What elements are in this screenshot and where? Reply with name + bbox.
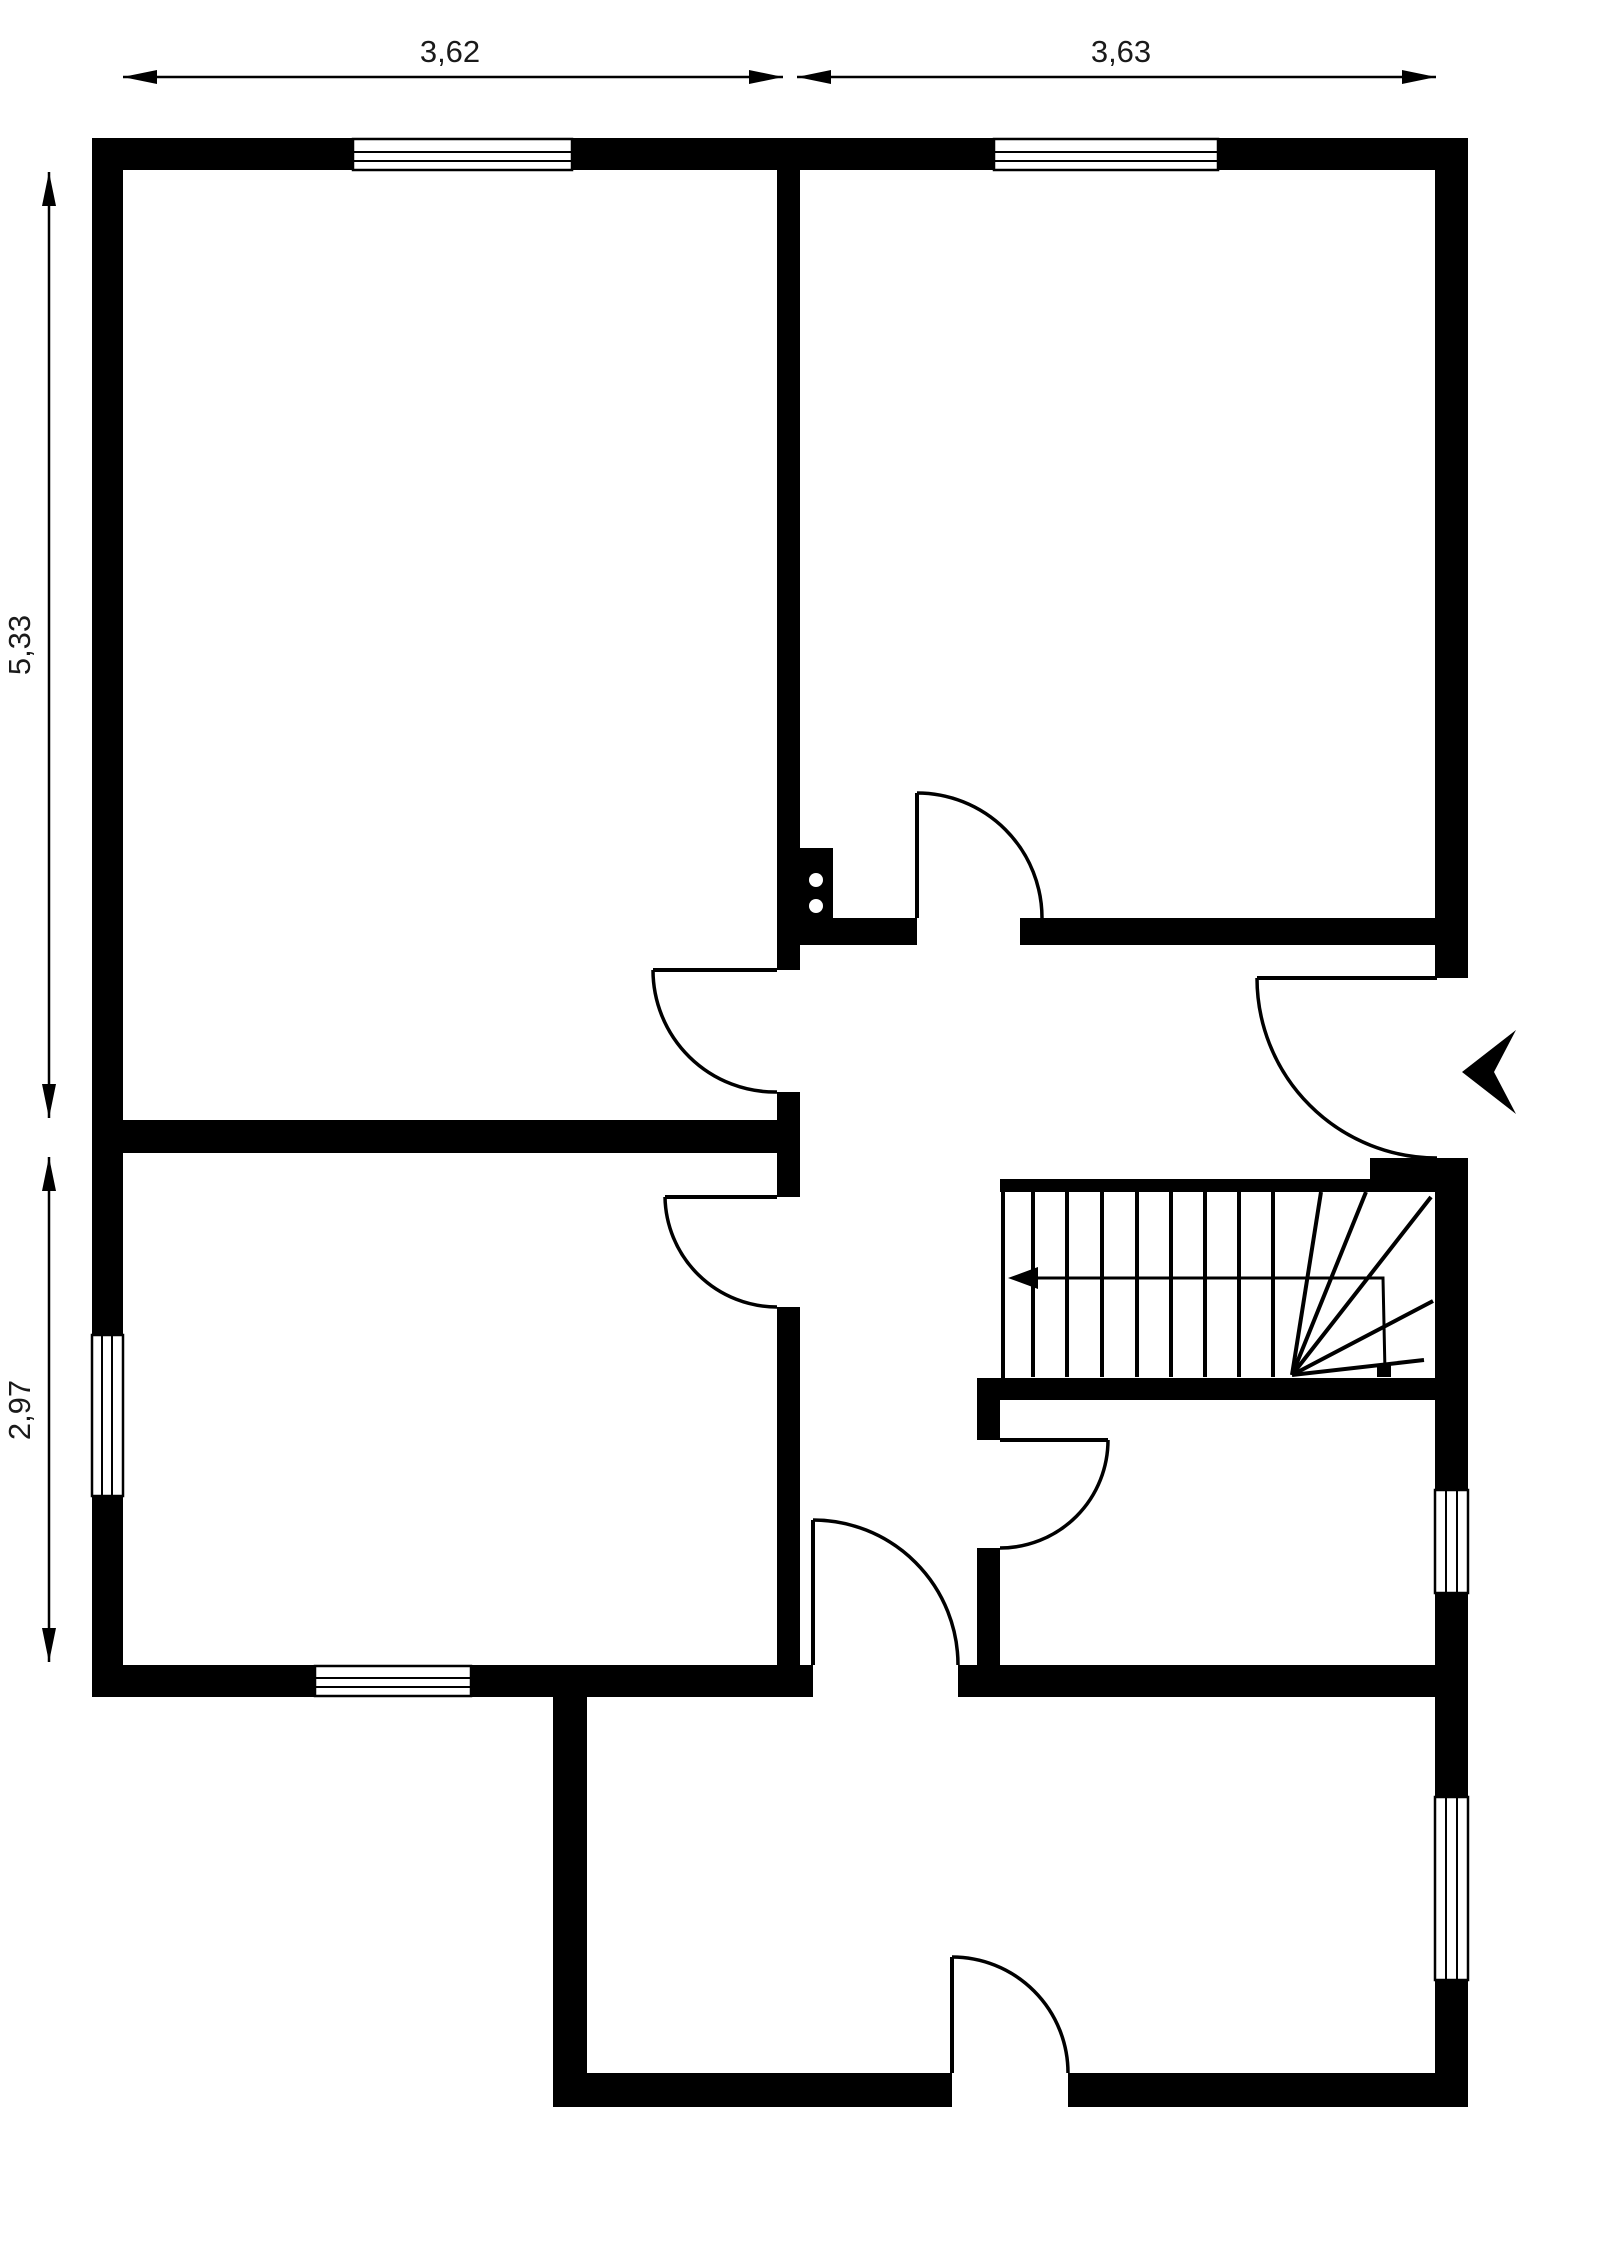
dim-left-lower: 2,97 [2, 1157, 56, 1662]
wall-upper-right-room-b [1020, 918, 1435, 945]
wall-under-stairs-seg1 [977, 1400, 1000, 1440]
window-right-upper-pane [1435, 1490, 1468, 1593]
wall-rear-extension-left [553, 1697, 587, 2107]
wall-stairs-top-thin [1000, 1179, 1435, 1192]
wall-exterior-right-seg2 [1435, 1158, 1468, 1490]
stair-start-dot [1377, 1365, 1391, 1377]
window-top-left-pane [353, 139, 572, 170]
dim-top-right-arrow-end [1402, 70, 1436, 84]
floor-plan: 3,623,635,332,97 [0, 0, 1600, 2264]
door-upper-left-room-swing-arc [653, 970, 777, 1092]
window-top-right [994, 139, 1218, 170]
window-top-left [353, 139, 572, 170]
dim-top-right: 3,63 [797, 34, 1436, 84]
stair-winder-0 [1292, 1192, 1321, 1375]
door-lower-left-room-swing-arc [665, 1197, 777, 1307]
dimensions-group: 3,623,635,332,97 [2, 34, 1436, 1662]
door-under-stairs [1000, 1440, 1108, 1548]
dim-left-upper-label: 5,33 [2, 615, 37, 675]
dim-left-upper-arrow-start [42, 172, 56, 206]
stair-winder-2 [1292, 1197, 1431, 1375]
window-left-pane [92, 1335, 123, 1496]
window-bottom-left [315, 1666, 471, 1696]
wall-rear-extension-bottom-b [1068, 2073, 1435, 2107]
door-rear-exterior [952, 1957, 1068, 2073]
dim-left-lower-arrow-start [42, 1157, 56, 1191]
dim-top-left: 3,62 [123, 34, 783, 84]
wall-exterior-top [92, 138, 1468, 170]
stair-winder-3 [1292, 1301, 1433, 1375]
electrical-outlet-symbol [800, 848, 833, 918]
dim-top-left-arrow-start [123, 70, 157, 84]
dim-top-left-label: 3,62 [420, 34, 480, 69]
wall-interior-center-seg1 [777, 170, 800, 970]
wall-exterior-right-seg4 [1435, 1980, 1468, 2107]
window-left [92, 1335, 123, 1496]
stairs-left-border [1001, 1191, 1005, 1378]
stair-winder-1 [1292, 1192, 1366, 1375]
dim-top-right-label: 3,63 [1091, 34, 1151, 69]
door-upper-right-room-swing-arc [917, 793, 1042, 918]
wall-stairs-bottom [977, 1378, 1435, 1400]
stairs-group [1001, 1191, 1433, 1378]
dim-left-lower-label: 2,97 [2, 1380, 37, 1440]
wall-bottom-mid-right [958, 1665, 1435, 1697]
dim-left-lower-arrow-end [42, 1628, 56, 1662]
door-rear-exterior-swing-arc [952, 1957, 1068, 2073]
door-hall-to-rear [813, 1520, 958, 1665]
walls-group [92, 138, 1468, 2107]
dim-top-left-arrow-end [749, 70, 783, 84]
wall-exterior-right-seg3 [1435, 1593, 1468, 1797]
door-entrance-swing-arc [1257, 978, 1437, 1158]
stair-winder-4 [1292, 1360, 1424, 1375]
door-upper-right-room [917, 793, 1042, 918]
door-lower-left-room [665, 1197, 777, 1307]
electrical-outlet-symbol-dot-1 [809, 899, 823, 913]
wall-rear-extension-bottom-a [553, 2073, 952, 2107]
stair-direction-arrowhead [1008, 1267, 1038, 1289]
wall-exterior-right-seg1 [1435, 170, 1468, 978]
symbols-group [800, 848, 1516, 1114]
door-entrance [1257, 978, 1437, 1158]
wall-interior-center-seg3 [777, 1307, 800, 1665]
wall-interior-left-divider [123, 1120, 800, 1153]
window-bottom-left-pane [315, 1666, 471, 1696]
door-under-stairs-swing-arc [1000, 1440, 1108, 1548]
dim-top-right-arrow-start [797, 70, 831, 84]
wall-under-stairs-seg2 [977, 1548, 1000, 1665]
wall-upper-right-room-a [777, 918, 917, 945]
window-right-lower [1435, 1797, 1468, 1980]
dim-left-upper-arrow-end [42, 1084, 56, 1118]
window-right-upper [1435, 1490, 1468, 1593]
door-hall-to-rear-swing-arc [813, 1520, 958, 1665]
entrance-direction-arrow [1462, 1030, 1516, 1114]
wall-entrance-jamb-block [1370, 1158, 1437, 1179]
electrical-outlet-symbol-dot-0 [809, 873, 823, 887]
floor-plan-page: 3,623,635,332,97 [0, 0, 1600, 2264]
door-upper-left-room [653, 970, 777, 1092]
window-right-lower-pane [1435, 1797, 1468, 1980]
doors-group [653, 793, 1437, 2073]
dim-left-upper: 5,33 [2, 172, 56, 1118]
window-top-right-pane [994, 139, 1218, 170]
